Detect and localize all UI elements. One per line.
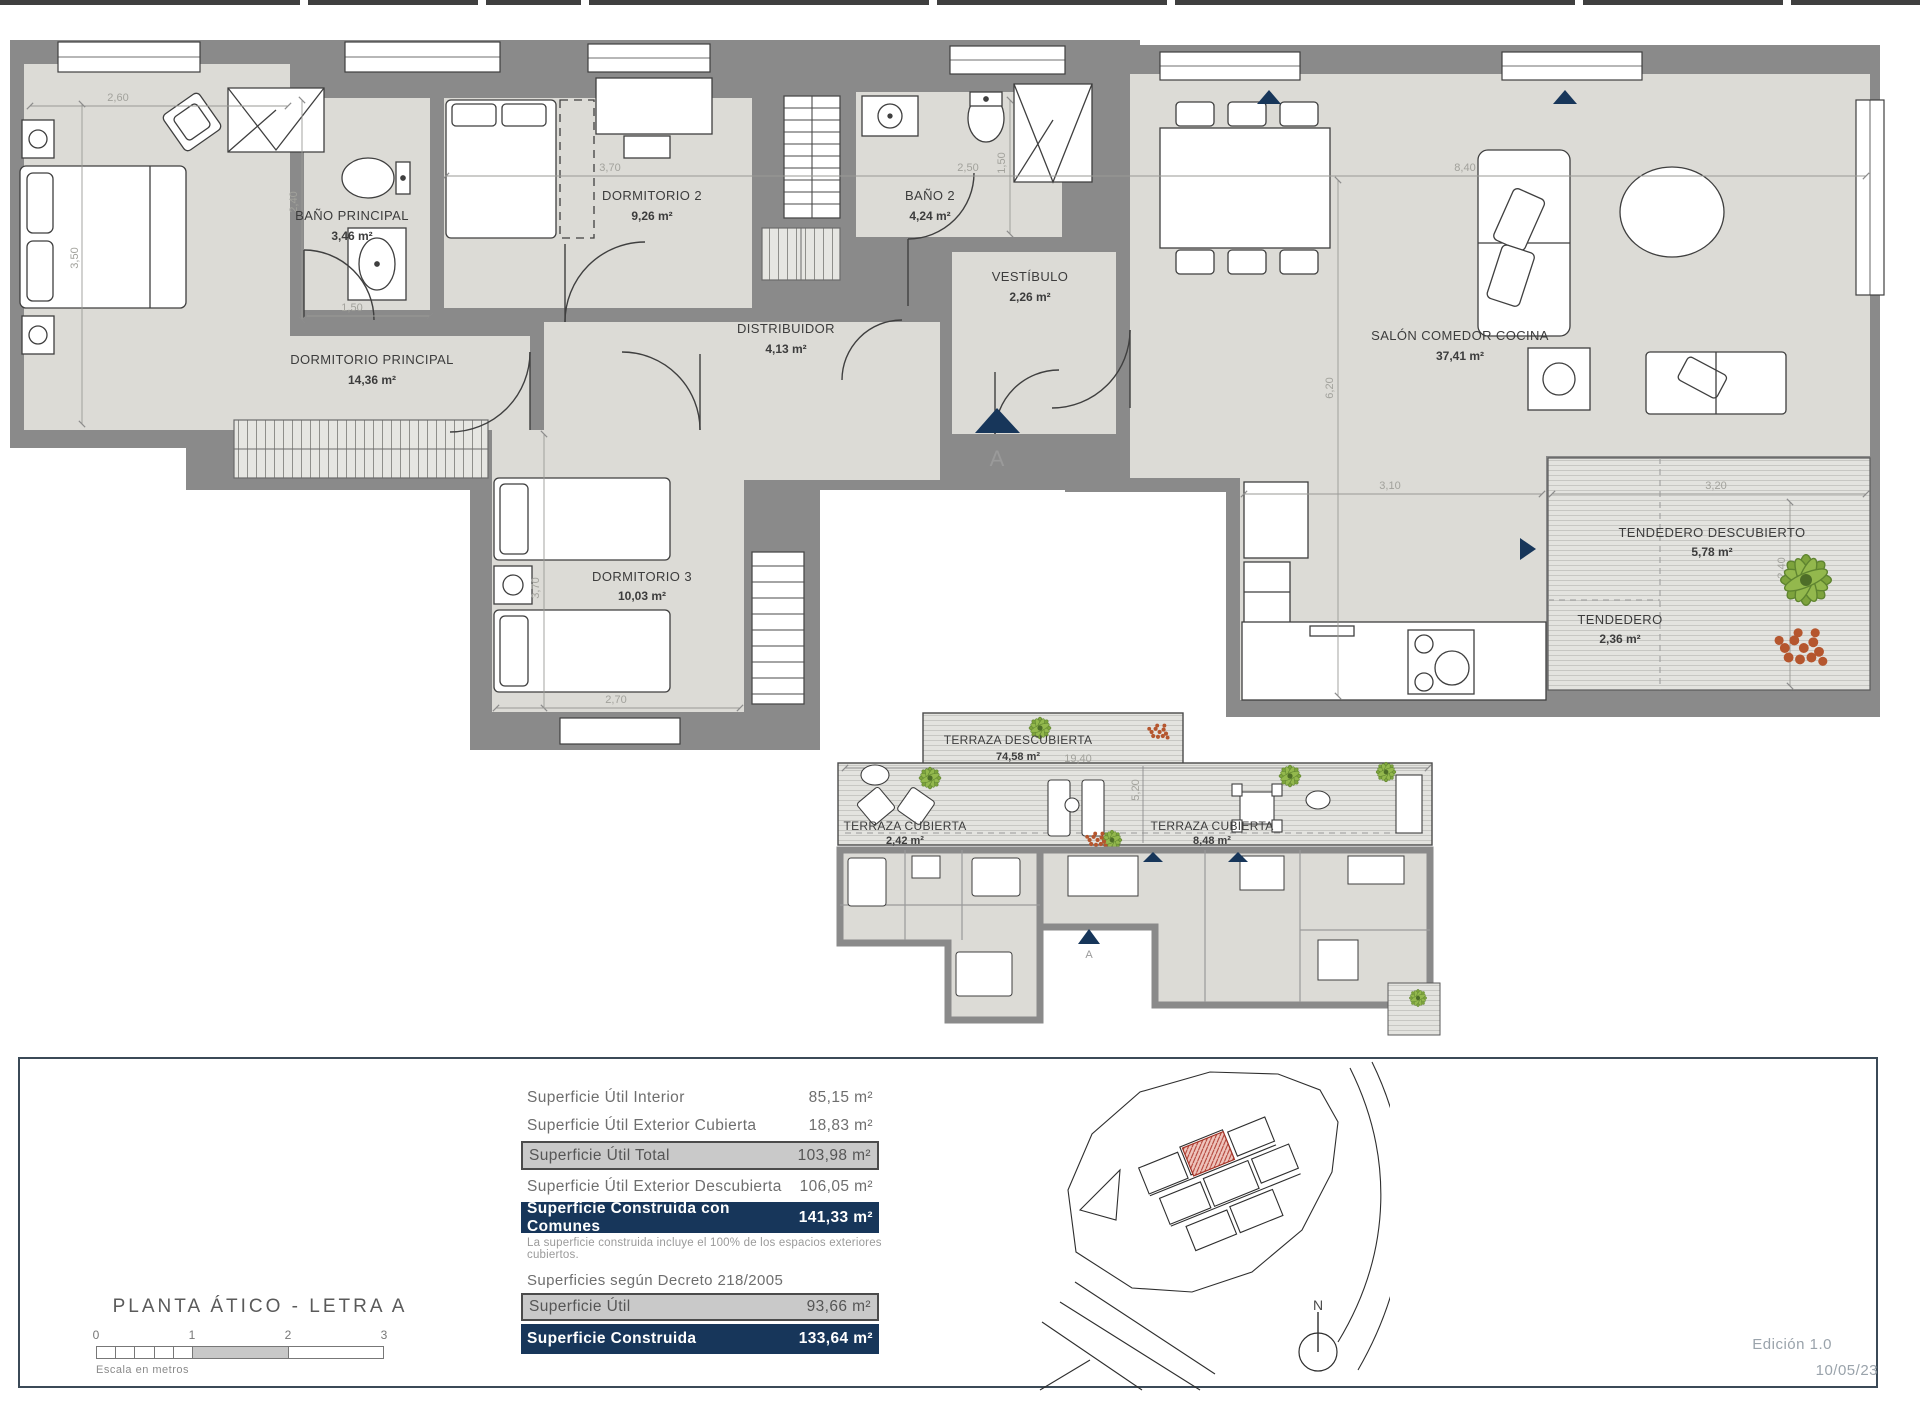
svg-text:2,50: 2,50 <box>957 162 978 174</box>
edition-label: Edición 1.0 <box>1650 1336 1832 1353</box>
date-label: 10/05/23 <box>1700 1362 1878 1379</box>
svg-text:A: A <box>1085 949 1093 961</box>
svg-text:4,24 m²: 4,24 m² <box>909 209 950 223</box>
plan-title: PLANTA ÁTICO - LETRA A <box>95 1296 425 1318</box>
summary-row-util-ext-descubierta: Superficie Útil Exterior Descubierta106,… <box>527 1174 873 1200</box>
label-salon: SALÓN COMEDOR COCINA <box>1371 328 1549 343</box>
scale-tick-0: 0 <box>84 1328 108 1342</box>
terrace-plan: TERRAZA DESCUBIERTA 74,58 m² 19,40 5,20 … <box>838 713 1432 850</box>
scale-caption: Escala en metros <box>96 1364 189 1376</box>
label-tendedero-descubierto: TENDEDERO DESCUBIERTO <box>1618 525 1805 540</box>
svg-text:3,50: 3,50 <box>69 247 81 268</box>
decree-row-util: Superficie Útil93,66 m² <box>521 1293 879 1321</box>
svg-text:2,60: 2,60 <box>107 92 128 104</box>
scale-bar: 0 1 2 3 Escala en metros <box>88 1328 398 1386</box>
label-bano-principal: BAÑO PRINCIPAL <box>295 208 409 223</box>
label-tendedero: TENDEDERO <box>1577 612 1662 627</box>
label-vestibulo: VESTÍBULO <box>992 269 1069 284</box>
svg-text:5,78 m²: 5,78 m² <box>1691 545 1732 559</box>
scale-tick-3: 3 <box>372 1328 396 1342</box>
scale-bar-graphic <box>96 1346 384 1359</box>
scale-tick-1: 1 <box>180 1328 204 1342</box>
svg-text:8,40: 8,40 <box>1454 162 1475 174</box>
site-plan: N <box>1020 1060 1390 1396</box>
svg-text:3,20: 3,20 <box>1705 480 1726 492</box>
svg-text:9,26 m²: 9,26 m² <box>631 209 672 223</box>
label-terraza-cubierta-der: TERRAZA CUBIERTA <box>1150 819 1273 833</box>
svg-text:2,26 m²: 2,26 m² <box>1009 290 1050 304</box>
summary-row-construida-comunes: Superficie Construida con Comunes141,33 … <box>521 1202 879 1233</box>
decree-heading: Superficies según Decreto 218/2005 <box>527 1272 887 1289</box>
svg-text:4,13 m²: 4,13 m² <box>765 342 806 356</box>
svg-text:2,36 m²: 2,36 m² <box>1599 632 1640 646</box>
summary-row-util-total: Superficie Útil Total103,98 m² <box>521 1141 879 1170</box>
svg-text:1,50: 1,50 <box>996 152 1008 173</box>
scale-tick-2: 2 <box>276 1328 300 1342</box>
svg-text:2,70: 2,70 <box>605 694 626 706</box>
label-dormitorio-principal: DORMITORIO PRINCIPAL <box>290 352 454 367</box>
decree-row-construida: Superficie Construida133,64 m² <box>521 1324 879 1354</box>
summary-note: La superficie construida incluye el 100%… <box>527 1237 887 1261</box>
svg-text:3,70: 3,70 <box>530 577 542 598</box>
svg-text:10,03 m²: 10,03 m² <box>618 589 666 603</box>
mini-section-marker-a: A <box>1078 929 1100 961</box>
label-dormitorio-2: DORMITORIO 2 <box>602 188 702 203</box>
north-label: N <box>1313 1297 1323 1313</box>
svg-text:3,10: 3,10 <box>1379 480 1400 492</box>
svg-text:37,41 m²: 37,41 m² <box>1436 349 1484 363</box>
svg-text:3,46 m²: 3,46 m² <box>331 229 372 243</box>
label-distribuidor: DISTRIBUIDOR <box>737 321 835 336</box>
svg-text:3,70: 3,70 <box>599 162 620 174</box>
label-terraza-descubierta: TERRAZA DESCUBIERTA <box>944 733 1093 747</box>
north-arrow: N <box>1299 1297 1337 1371</box>
svg-text:74,58 m²: 74,58 m² <box>996 751 1040 763</box>
svg-text:19,40: 19,40 <box>1064 753 1092 765</box>
label-bano-2: BAÑO 2 <box>905 188 955 203</box>
svg-text:8,48 m²: 8,48 m² <box>1193 835 1231 847</box>
summary-row-util-ext-cubierta: Superficie Útil Exterior Cubierta18,83 m… <box>527 1113 873 1139</box>
svg-text:5,20: 5,20 <box>1130 779 1142 800</box>
svg-text:6,20: 6,20 <box>1324 377 1336 398</box>
svg-text:14,36 m²: 14,36 m² <box>348 373 396 387</box>
summary-row-util-interior: Superficie Útil Interior85,15 m² <box>527 1085 873 1111</box>
label-terraza-cubierta-izq: TERRAZA CUBIERTA <box>843 819 966 833</box>
floor-plan-drawing: 2,60 3,50 2,40 1,50 3,70 2,50 1,50 8,40 … <box>0 0 1920 1056</box>
svg-text:1,50: 1,50 <box>341 302 362 314</box>
svg-text:A: A <box>990 446 1005 471</box>
label-dormitorio-3: DORMITORIO 3 <box>592 569 692 584</box>
floorplan-sheet: 2,60 3,50 2,40 1,50 3,70 2,50 1,50 8,40 … <box>0 0 1920 1406</box>
svg-text:2,42 m²: 2,42 m² <box>886 835 924 847</box>
mini-apartment-plan: A <box>840 850 1440 1035</box>
